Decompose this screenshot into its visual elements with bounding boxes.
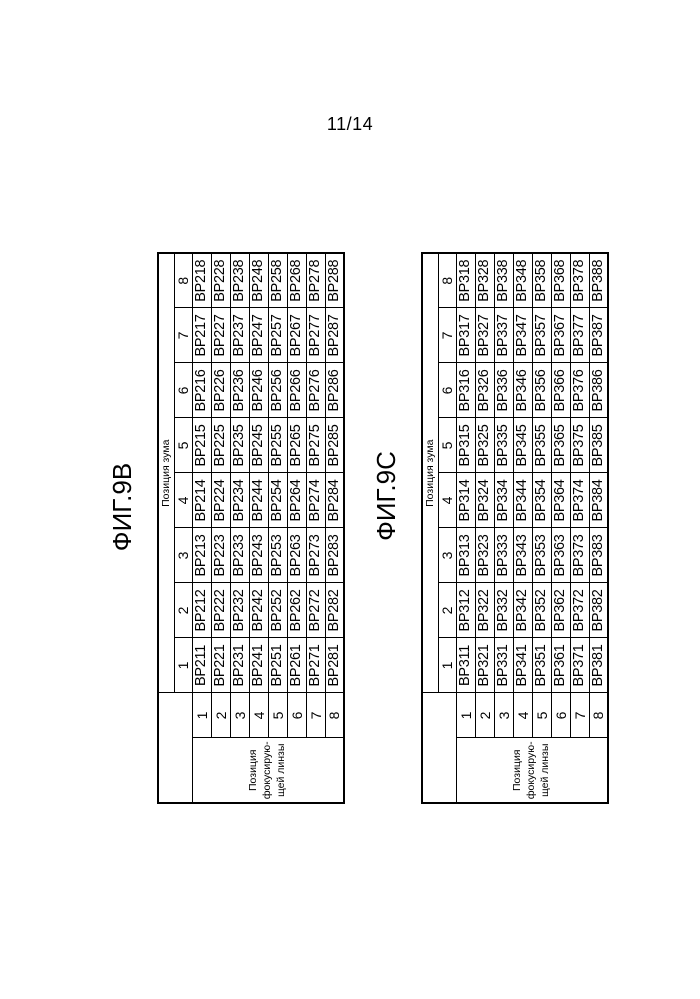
focus-position-header: Позицияфокусирую-щей линзы	[192, 738, 344, 803]
table-cell-value: BP354	[532, 473, 551, 528]
table-cell-value: BP311	[456, 638, 475, 693]
table-cell-value: BP356	[532, 363, 551, 418]
table-cell-value: BP338	[494, 253, 513, 308]
table-cell-value: BP353	[532, 528, 551, 583]
table-cell-value: BP326	[475, 363, 494, 418]
focus-position-header-line: Позиция	[511, 739, 525, 803]
table-cell-value: BP247	[249, 308, 268, 363]
table-cell-value: BP358	[532, 253, 551, 308]
table-cell-value: BP278	[306, 253, 325, 308]
table-cell-value: BP214	[192, 473, 211, 528]
table-cell-value: BP212	[192, 583, 211, 638]
zoom-position-number: 8	[438, 253, 456, 308]
focus-position-header-line: щей линзы	[275, 739, 289, 803]
figure-9c-table: Позиция зума12345678Позицияфокусирую-щей…	[421, 252, 609, 804]
table-cell-value: BP237	[230, 308, 249, 363]
table-cell-value: BP331	[494, 638, 513, 693]
table-cell-value: BP336	[494, 363, 513, 418]
table-cell-value: BP218	[192, 253, 211, 308]
table-cell-value: BP285	[325, 418, 344, 473]
table-cell-value: BP265	[287, 418, 306, 473]
table-cell-value: BP318	[456, 253, 475, 308]
table-cell-value: BP223	[211, 528, 230, 583]
table-cell-value: BP241	[249, 638, 268, 693]
table-cell-value: BP284	[325, 473, 344, 528]
zoom-position-number: 2	[438, 583, 456, 638]
table-cell-value: BP216	[192, 363, 211, 418]
focus-position-number: 7	[306, 693, 325, 738]
table-cell-value: BP373	[570, 528, 589, 583]
table-cell-value: BP321	[475, 638, 494, 693]
rotated-figures-container: ФИГ.9В Позиция зума12345678Позицияфокуси…	[105, 254, 605, 804]
table-cell-value: BP253	[268, 528, 287, 583]
table-cell-value: BP245	[249, 418, 268, 473]
table-cell-value: BP258	[268, 253, 287, 308]
table-cell-value: BP233	[230, 528, 249, 583]
figure-9b-table: Позиция зума12345678Позицияфокусирую-щей…	[157, 252, 345, 804]
zoom-position-number: 6	[174, 363, 192, 418]
table-cell-value: BP274	[306, 473, 325, 528]
figure-9b-label: ФИГ.9В	[105, 232, 139, 782]
table-cell-value: BP217	[192, 308, 211, 363]
zoom-position-number: 4	[438, 473, 456, 528]
table-cell-value: BP343	[513, 528, 532, 583]
focus-position-header-line: щей линзы	[539, 739, 553, 803]
table-cell-value: BP371	[570, 638, 589, 693]
table-cell-value: BP243	[249, 528, 268, 583]
table-cell-value: BP388	[589, 253, 608, 308]
focus-position-number: 5	[532, 693, 551, 738]
table-cell-value: BP344	[513, 473, 532, 528]
table-cell-value: BP277	[306, 308, 325, 363]
focus-position-number: 2	[475, 693, 494, 738]
zoom-position-number: 1	[174, 638, 192, 693]
table-cell-value: BP254	[268, 473, 287, 528]
table-cell-value: BP332	[494, 583, 513, 638]
table-cell-value: BP374	[570, 473, 589, 528]
table-cell-value: BP322	[475, 583, 494, 638]
table-cell-value: BP257	[268, 308, 287, 363]
table-cell-value: BP213	[192, 528, 211, 583]
table-cell-value: BP287	[325, 308, 344, 363]
table-cell-value: BP382	[589, 583, 608, 638]
table-cell-value: BP262	[287, 583, 306, 638]
table-cell-value: BP242	[249, 583, 268, 638]
table-cell-value: BP271	[306, 638, 325, 693]
table-cell-value: BP363	[551, 528, 570, 583]
table-cell-value: BP357	[532, 308, 551, 363]
table-corner-cell	[158, 693, 192, 803]
table-cell-value: BP234	[230, 473, 249, 528]
table-cell-value: BP335	[494, 418, 513, 473]
zoom-position-number: 3	[174, 528, 192, 583]
table-cell-value: BP375	[570, 418, 589, 473]
focus-position-number: 4	[513, 693, 532, 738]
table-cell-value: BP263	[287, 528, 306, 583]
table-cell-value: BP238	[230, 253, 249, 308]
zoom-position-number: 7	[174, 308, 192, 363]
zoom-position-number: 1	[438, 638, 456, 693]
table-cell-value: BP347	[513, 308, 532, 363]
table-cell-value: BP381	[589, 638, 608, 693]
focus-position-header: Позицияфокусирую-щей линзы	[456, 738, 608, 803]
table-cell-value: BP282	[325, 583, 344, 638]
table-cell-value: BP222	[211, 583, 230, 638]
table-cell-value: BP342	[513, 583, 532, 638]
table-cell-value: BP324	[475, 473, 494, 528]
table-cell-value: BP377	[570, 308, 589, 363]
table-cell-value: BP226	[211, 363, 230, 418]
table-cell-value: BP225	[211, 418, 230, 473]
table-cell-value: BP372	[570, 583, 589, 638]
table-cell-value: BP341	[513, 638, 532, 693]
table-cell-value: BP367	[551, 308, 570, 363]
zoom-position-number: 6	[438, 363, 456, 418]
table-cell-value: BP364	[551, 473, 570, 528]
zoom-position-number: 5	[174, 418, 192, 473]
focus-position-header-line: фокусирую-	[261, 739, 275, 803]
table-cell-value: BP376	[570, 363, 589, 418]
zoom-position-number: 7	[438, 308, 456, 363]
table-cell-value: BP323	[475, 528, 494, 583]
table-cell-value: BP246	[249, 363, 268, 418]
table-cell-value: BP385	[589, 418, 608, 473]
table-cell-value: BP276	[306, 363, 325, 418]
focus-position-number: 3	[494, 693, 513, 738]
zoom-position-number: 4	[174, 473, 192, 528]
table-cell-value: BP387	[589, 308, 608, 363]
table-cell-value: BP362	[551, 583, 570, 638]
table-cell-value: BP275	[306, 418, 325, 473]
table-cell-value: BP228	[211, 253, 230, 308]
table-cell-value: BP215	[192, 418, 211, 473]
table-cell-value: BP221	[211, 638, 230, 693]
focus-position-number: 3	[230, 693, 249, 738]
table-cell-value: BP352	[532, 583, 551, 638]
table-cell-value: BP235	[230, 418, 249, 473]
focus-position-number: 1	[456, 693, 475, 738]
table-cell-value: BP328	[475, 253, 494, 308]
focus-position-number: 4	[249, 693, 268, 738]
figure-9c-label: ФИГ.9С	[369, 221, 403, 771]
table-cell-value: BP267	[287, 308, 306, 363]
table-cell-value: BP314	[456, 473, 475, 528]
table-cell-value: BP361	[551, 638, 570, 693]
focus-position-number: 8	[589, 693, 608, 738]
table-cell-value: BP266	[287, 363, 306, 418]
table-cell-value: BP355	[532, 418, 551, 473]
table-cell-value: BP227	[211, 308, 230, 363]
table-cell-value: BP248	[249, 253, 268, 308]
table-cell-value: BP334	[494, 473, 513, 528]
focus-position-number: 2	[211, 693, 230, 738]
table-cell-value: BP261	[287, 638, 306, 693]
table-cell-value: BP251	[268, 638, 287, 693]
table-cell-value: BP365	[551, 418, 570, 473]
table-cell-value: BP224	[211, 473, 230, 528]
zoom-position-number: 3	[438, 528, 456, 583]
table-corner-cell	[422, 693, 456, 803]
focus-position-number: 6	[551, 693, 570, 738]
table-cell-value: BP366	[551, 363, 570, 418]
table-cell-value: BP232	[230, 583, 249, 638]
table-cell-value: BP288	[325, 253, 344, 308]
focus-position-number: 5	[268, 693, 287, 738]
table-cell-value: BP378	[570, 253, 589, 308]
focus-position-number: 1	[192, 693, 211, 738]
table-cell-value: BP384	[589, 473, 608, 528]
table-cell-value: BP236	[230, 363, 249, 418]
zoom-position-number: 8	[174, 253, 192, 308]
table-cell-value: BP252	[268, 583, 287, 638]
table-cell-value: BP346	[513, 363, 532, 418]
table-cell-value: BP348	[513, 253, 532, 308]
table-cell-value: BP272	[306, 583, 325, 638]
table-cell-value: BP345	[513, 418, 532, 473]
table-cell-value: BP368	[551, 253, 570, 308]
zoom-position-header: Позиция зума	[158, 253, 174, 693]
table-cell-value: BP286	[325, 363, 344, 418]
table-cell-value: BP281	[325, 638, 344, 693]
focus-position-header-line: Позиция	[247, 739, 261, 803]
focus-position-number: 8	[325, 693, 344, 738]
table-cell-value: BP317	[456, 308, 475, 363]
zoom-position-number: 5	[438, 418, 456, 473]
table-cell-value: BP337	[494, 308, 513, 363]
focus-position-header-line: фокусирую-	[525, 739, 539, 803]
table-cell-value: BP325	[475, 418, 494, 473]
table-cell-value: BP283	[325, 528, 344, 583]
table-cell-value: BP255	[268, 418, 287, 473]
table-cell-value: BP313	[456, 528, 475, 583]
table-cell-value: BP316	[456, 363, 475, 418]
table-cell-value: BP315	[456, 418, 475, 473]
table-cell-value: BP312	[456, 583, 475, 638]
focus-position-number: 6	[287, 693, 306, 738]
zoom-position-number: 2	[174, 583, 192, 638]
table-cell-value: BP327	[475, 308, 494, 363]
focus-position-number: 7	[570, 693, 589, 738]
table-cell-value: BP351	[532, 638, 551, 693]
table-cell-value: BP383	[589, 528, 608, 583]
table-cell-value: BP256	[268, 363, 287, 418]
table-cell-value: BP231	[230, 638, 249, 693]
table-cell-value: BP386	[589, 363, 608, 418]
table-cell-value: BP268	[287, 253, 306, 308]
table-cell-value: BP264	[287, 473, 306, 528]
zoom-position-header: Позиция зума	[422, 253, 438, 693]
table-cell-value: BP244	[249, 473, 268, 528]
table-cell-value: BP211	[192, 638, 211, 693]
page-number: 11/14	[0, 114, 700, 135]
table-cell-value: BP273	[306, 528, 325, 583]
table-cell-value: BP333	[494, 528, 513, 583]
